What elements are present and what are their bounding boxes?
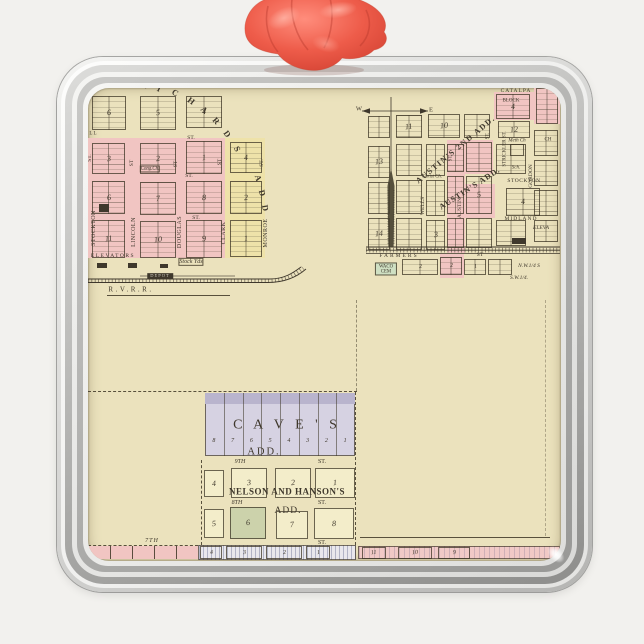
compass-needle-feather <box>388 168 395 247</box>
metal-ornament: 6543216781110942111101241354143221432156… <box>57 57 592 592</box>
railroad-rail <box>88 267 301 279</box>
ribbon-body <box>245 0 386 70</box>
ribbon <box>234 0 396 78</box>
compass-east-arrow <box>420 108 428 114</box>
plat-map: 6543216781110942111101241354143221432156… <box>88 88 561 561</box>
compass-west-arrow <box>362 108 370 114</box>
railroad-and-compass-overlay <box>88 88 561 561</box>
photo-background: 6543216781110942111101241354143221432156… <box>0 0 644 644</box>
